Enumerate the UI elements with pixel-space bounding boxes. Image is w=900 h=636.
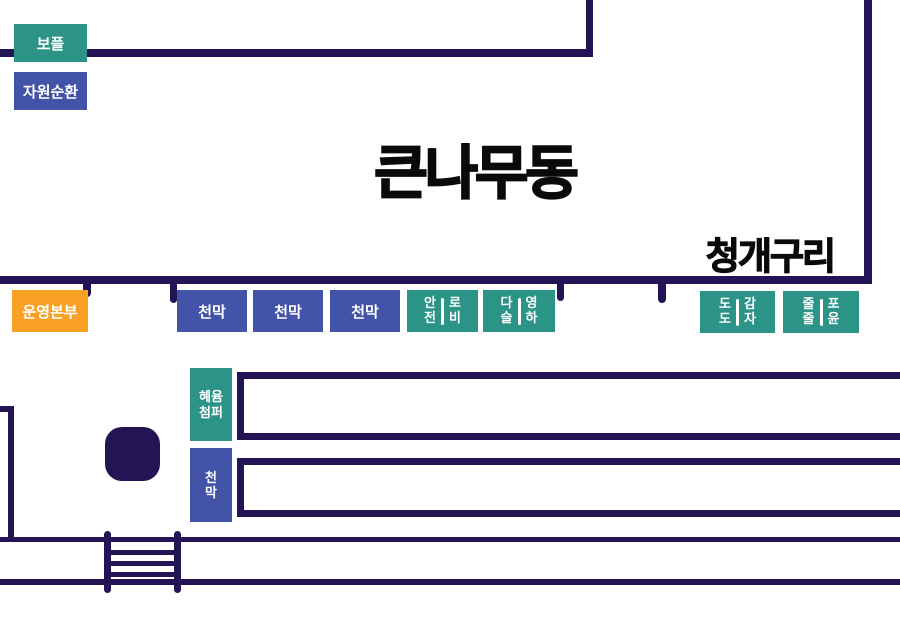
crosswalk-rung-3 [104,572,181,577]
wall-bottomleft-vertical [8,406,14,541]
booth-tent-vertical-line1: 천 [205,470,217,485]
booth-label-char: 다 [501,296,513,311]
booth-yeongha-column: 영 하 [526,296,538,325]
tree-shape [105,427,160,481]
booth-label-char: 영 [526,296,538,311]
booth-label-char: 비 [449,311,461,326]
booth-daseul-yeongha: 다 슬 영 하 [483,290,555,332]
booth-tent-1: 천막 [177,290,247,332]
booth-hyeyum-line2: 첨퍼 [199,405,223,420]
booth-label-char: 윤 [828,312,840,327]
corridor-outline-1 [237,372,900,440]
booth-tent-vertical-line2: 막 [205,485,217,500]
entrance-tick-4 [658,284,666,303]
booth-tent-2: 천막 [253,290,323,332]
booth-bople-label: 보플 [37,33,65,54]
crosswalk-rung-1 [104,550,181,555]
booth-daseul-column: 다 슬 [501,296,513,325]
booth-divider [736,299,739,326]
booth-label-char: 감 [744,297,756,312]
booth-bople: 보플 [14,24,87,62]
booth-label-char: 줄 [803,312,815,327]
crosswalk-rung-2 [104,561,181,566]
booth-label-char: 도 [719,312,731,327]
booth-tent-2-label: 천막 [274,301,302,322]
booth-tent-1-label: 천막 [198,301,226,322]
entrance-tick-2 [170,284,177,303]
booth-label-char: 자 [744,312,756,327]
booth-safety-column: 안 전 [424,296,436,325]
booth-label-char: 슬 [501,311,513,326]
booth-label-char: 줄 [803,297,815,312]
booth-tent-3: 천막 [330,290,400,332]
booth-juljul-column: 줄 줄 [803,297,815,326]
booth-divider [518,298,521,325]
booth-hq-label: 운영본부 [22,301,77,322]
neighbor-zone-label: 청개구리 [655,226,885,280]
booth-divider [820,299,823,326]
path-line-lower [0,579,900,585]
booth-label-char: 로 [449,296,461,311]
booth-tent-vertical: 천 막 [190,448,232,522]
wall-top-vertical [586,0,593,57]
booth-divider [441,298,444,325]
path-line-upper [0,537,900,542]
booth-dodo-gamja: 도 도 감 자 [700,291,775,333]
booth-label-char: 전 [424,311,436,326]
booth-poyun-column: 포 윤 [828,297,840,326]
booth-label-char: 안 [424,296,436,311]
booth-tent-3-label: 천막 [351,301,379,322]
booth-recycle: 자원순환 [14,72,87,110]
booth-hq: 운영본부 [12,290,88,332]
zone-title: 큰나무동 [290,126,660,210]
booth-label-char: 포 [828,297,840,312]
booth-gamja-column: 감 자 [744,297,756,326]
booth-label-char: 도 [719,297,731,312]
booth-hyeyum: 혜윰 첨퍼 [190,368,232,441]
entrance-tick-3 [557,284,564,301]
booth-safety-lobby: 안 전 로 비 [407,290,478,332]
booth-recycle-label: 자원순환 [23,81,78,102]
venue-map: 큰나무동 청개구리 보플 자원순환 운영본부 천막 천막 천막 안 전 로 비 [0,0,900,636]
booth-hyeyum-line1: 혜윰 [199,389,223,404]
booth-juljul-poyun: 줄 줄 포 윤 [783,291,859,333]
booth-dodo-column: 도 도 [719,297,731,326]
corridor-outline-2 [237,458,900,517]
booth-lobby-column: 로 비 [449,296,461,325]
booth-label-char: 하 [526,311,538,326]
wall-top-horizontal [0,49,593,57]
